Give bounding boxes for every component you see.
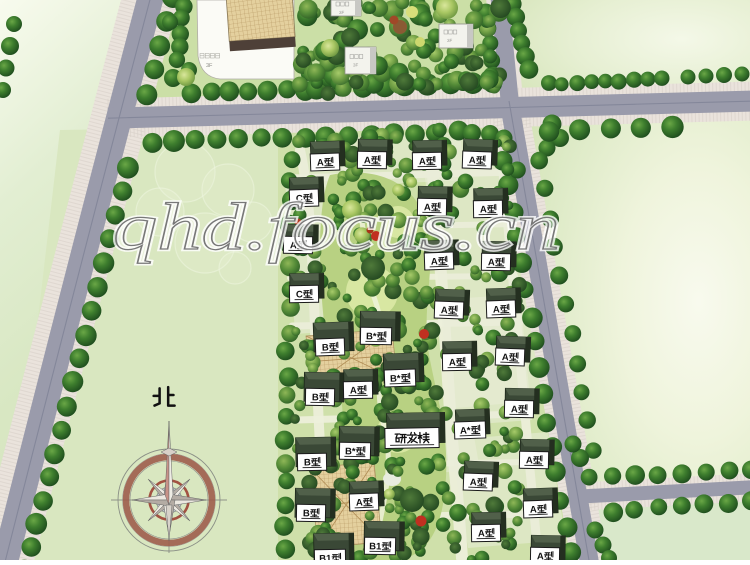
svg-text:B1: B1: [369, 541, 382, 552]
svg-text:B: B: [304, 457, 311, 468]
svg-text:B: B: [322, 342, 329, 353]
svg-text:B*: B*: [345, 446, 356, 457]
svg-text:B1: B1: [319, 553, 332, 560]
svg-text:A: A: [511, 404, 518, 415]
svg-text:A: A: [470, 477, 477, 488]
svg-text:C: C: [296, 289, 303, 300]
svg-text:A: A: [478, 528, 485, 539]
svg-text:A: A: [449, 357, 456, 368]
svg-text:3F: 3F: [447, 38, 453, 43]
svg-text:A: A: [530, 504, 537, 515]
svg-text:3F: 3F: [353, 63, 359, 68]
svg-text:B: B: [303, 508, 310, 519]
svg-text:A: A: [419, 156, 426, 167]
svg-text:A: A: [502, 352, 509, 363]
svg-text:A: A: [364, 155, 371, 166]
svg-text:3F: 3F: [339, 10, 345, 15]
svg-text:B*: B*: [366, 331, 377, 342]
svg-text:A: A: [537, 551, 544, 560]
svg-text:A: A: [526, 455, 533, 466]
svg-text:qhd.focus.cn: qhd.focus.cn: [113, 190, 560, 264]
svg-text:A: A: [469, 155, 476, 166]
svg-text:A: A: [493, 304, 500, 315]
svg-text:A: A: [317, 157, 324, 168]
svg-text:3F: 3F: [206, 63, 213, 69]
svg-text:A: A: [350, 385, 357, 396]
svg-text:B: B: [312, 392, 319, 403]
svg-text:A: A: [441, 305, 448, 316]
svg-text:A: A: [356, 497, 363, 508]
